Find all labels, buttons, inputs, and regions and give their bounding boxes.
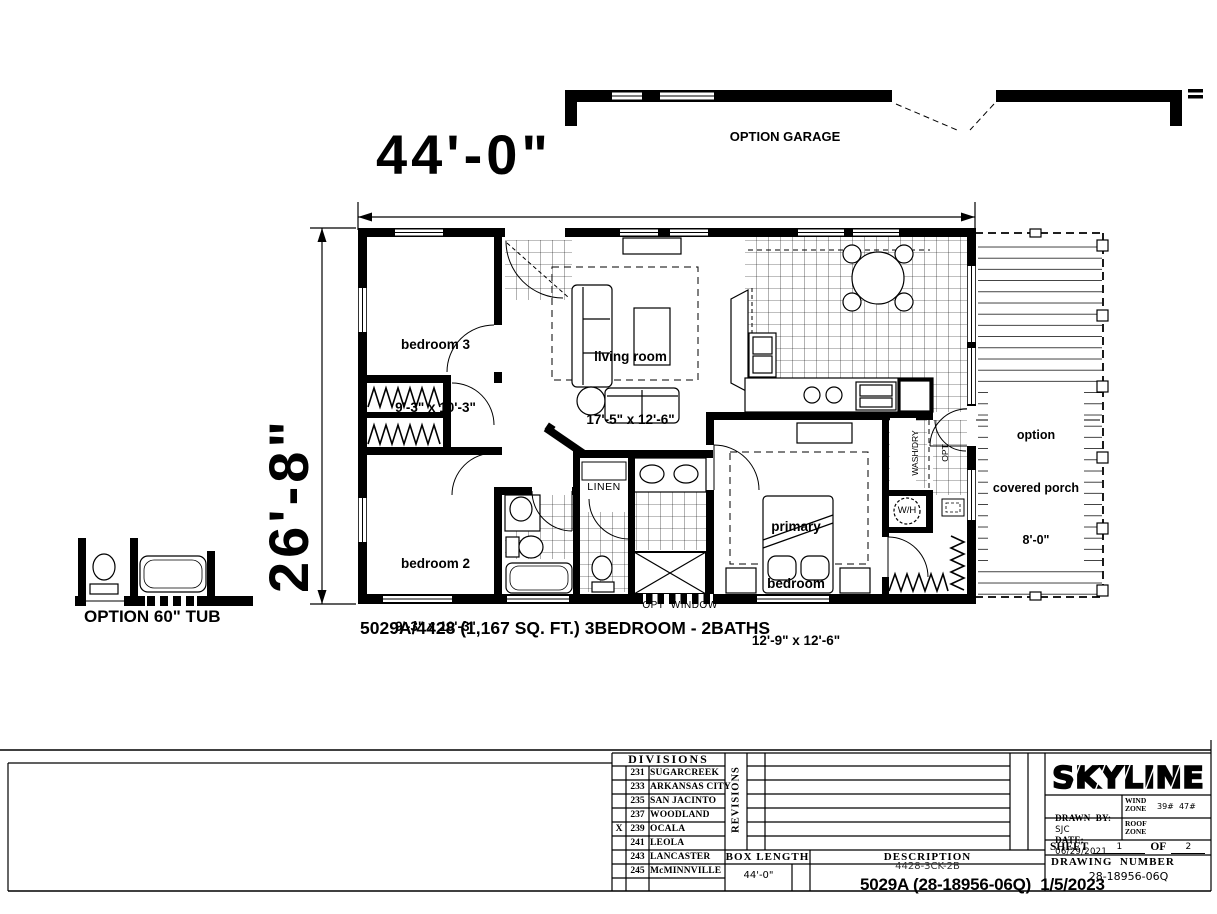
porch-label: option covered porch 8'-0" xyxy=(988,392,1084,567)
width-dimension: 44'-0" xyxy=(376,127,552,183)
bedroom3-label: bedroom 3 9'-3" x 10'-3" xyxy=(368,292,503,439)
plan-caption: 5029A/4428 (1,167 SQ. FT.) 3BEDROOM - 2B… xyxy=(360,617,770,639)
living-room-size: 17'-5" x 12'-6" xyxy=(558,409,703,430)
division-code: 241 xyxy=(626,836,649,850)
division-name: WOODLAND xyxy=(650,808,725,822)
division-code: 239 xyxy=(626,822,649,836)
division-name: OCALA xyxy=(650,822,725,836)
bedroom3-size: 9'-3" x 10'-3" xyxy=(368,397,503,418)
division-name: McMINNVILLE xyxy=(650,864,725,878)
division-name: ARKANSAS CITY xyxy=(650,780,725,794)
floor-plan-sheet: SKYLINE OPTION GARAGE 44'-0" 26'-8" bedr… xyxy=(0,0,1217,914)
description-value: 4428-3CK-2B xyxy=(810,860,1045,873)
bedroom3-name: bedroom 3 xyxy=(368,334,503,355)
sheet-label: SHEET xyxy=(1050,841,1088,854)
division-code: 231 xyxy=(626,766,649,780)
sheet-of-label: OF xyxy=(1150,841,1166,854)
division-name: SUGARCREEK xyxy=(650,766,725,780)
porch-line3: 8'-0" xyxy=(988,532,1084,550)
porch-line2: covered porch xyxy=(988,480,1084,498)
linen-label: LINEN xyxy=(578,481,630,494)
wind-zone-value: 39# 47# xyxy=(1157,802,1196,811)
water-heater-label: W/H xyxy=(889,505,925,517)
option-tub-detail xyxy=(75,538,253,606)
division-name: SAN JACINTO xyxy=(650,794,725,808)
revision-stamp: 5029A (28-18956-06Q) 1/5/2023 xyxy=(860,875,1105,895)
division-code: 235 xyxy=(626,794,649,808)
depth-dimension: 26'-8" xyxy=(261,405,317,605)
primary-line1: primary xyxy=(725,517,867,536)
division-code: 245 xyxy=(626,864,649,878)
washdry-line1: WASH/DRY xyxy=(910,418,920,488)
box-length-label: BOX LENGTH xyxy=(725,850,810,864)
wind-zone-label-2: ZONE xyxy=(1125,805,1146,814)
revisions-label: REVISIONS xyxy=(728,755,745,845)
living-room-name: living room xyxy=(558,346,703,367)
division-name: LANCASTER xyxy=(650,850,725,864)
division-code: 243 xyxy=(626,850,649,864)
bedroom2-name: bedroom 2 xyxy=(368,553,503,574)
divisions-header: DIVISIONS xyxy=(612,752,725,766)
division-code: 237 xyxy=(626,808,649,822)
box-length-value: 44'-0" xyxy=(725,869,792,883)
drawn-by-label: DRAWN BY: xyxy=(1055,813,1111,823)
skyline-logo: SKYLINE xyxy=(1052,757,1204,796)
division-code: 233 xyxy=(626,780,649,794)
primary-bedroom-label: primary bedroom 12'-9" x 12'-6" xyxy=(725,479,867,669)
option-tub-label: OPTION 60" TUB xyxy=(84,607,221,627)
division-name: LEOLA xyxy=(650,836,725,850)
washdry-line2: OPT xyxy=(940,418,950,488)
division-check-active: X xyxy=(612,822,626,836)
sheet-field: SHEET 1 OF 2 xyxy=(1050,841,1208,854)
sheet-of-value: 2 xyxy=(1171,841,1205,854)
option-garage-outline xyxy=(565,89,1203,130)
sheet-value: 1 xyxy=(1093,841,1145,854)
opt-window-label: OPT WINDOW xyxy=(638,600,722,612)
porch-line1: option xyxy=(988,427,1084,445)
option-garage-label: OPTION GARAGE xyxy=(700,129,870,144)
living-room-label: living room 17'-5" x 12'-6" xyxy=(558,304,703,451)
washdry-label: WASH/DRY OPT xyxy=(890,418,916,488)
roof-zone-label-2: ZONE xyxy=(1125,828,1146,837)
primary-line2: bedroom xyxy=(725,574,867,593)
